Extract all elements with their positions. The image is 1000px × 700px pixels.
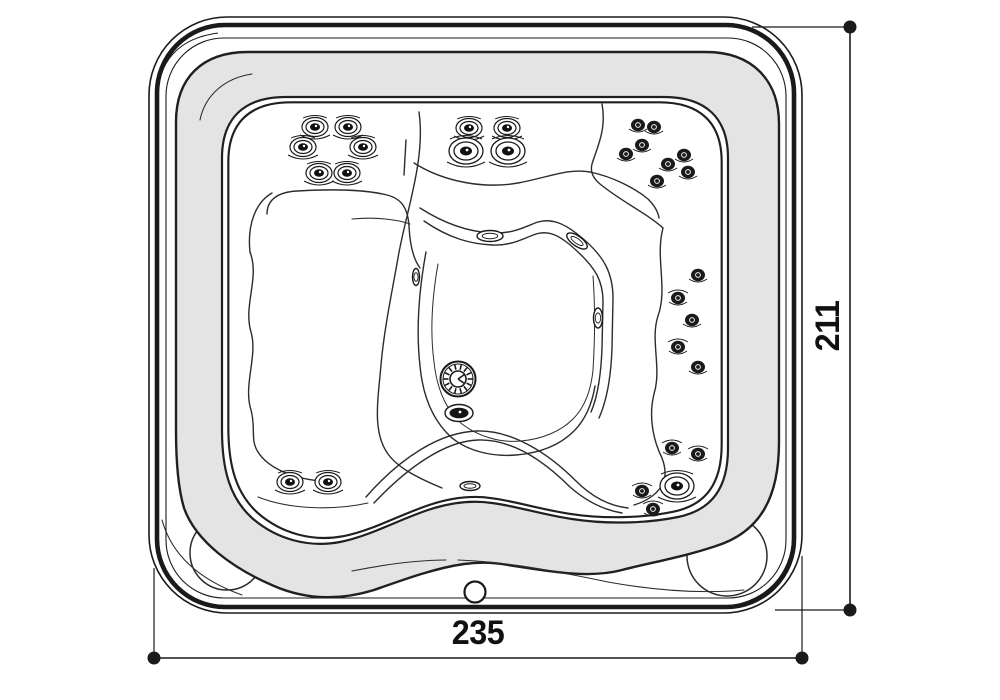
jet-medium-core	[310, 123, 320, 131]
jet-large-core	[460, 147, 472, 156]
jet-medium-core	[464, 124, 474, 132]
height-dimension-dot	[844, 604, 857, 617]
jet-small	[691, 269, 705, 281]
jet-large-core	[502, 147, 514, 156]
drain-tick	[460, 388, 461, 393]
jet-small	[691, 448, 705, 460]
jet-highlight	[348, 125, 350, 127]
jet-highlight	[347, 171, 349, 173]
jet-medium-core	[502, 124, 512, 132]
height-dimension-label: 211	[811, 301, 845, 352]
jet-highlight	[677, 484, 680, 487]
jet-highlight	[315, 125, 317, 127]
jet-medium-core	[358, 143, 368, 151]
jet-highlight	[328, 480, 330, 482]
jet-small	[665, 442, 679, 454]
basin-edge-echo	[228, 102, 721, 538]
jet-highlight	[508, 149, 511, 152]
jet-small	[681, 166, 695, 178]
jet-highlight	[319, 171, 321, 173]
jet-small	[671, 341, 685, 353]
width-dimension-dot	[148, 652, 161, 665]
jet-medium-core	[285, 478, 295, 486]
jet-highlight	[466, 149, 469, 152]
jet-highlight	[363, 145, 365, 147]
jet-highlight	[469, 126, 471, 128]
technical-drawing-canvas: 235 211	[0, 0, 1000, 700]
water-fitting-outer	[477, 231, 503, 242]
jet-small	[631, 119, 645, 131]
jet-medium-core	[323, 478, 333, 486]
jet-small	[635, 139, 649, 151]
water-fitting-outer	[460, 482, 480, 491]
jet-highlight	[303, 145, 305, 147]
jet-highlight	[290, 480, 292, 482]
drain-tick	[455, 388, 456, 393]
suction-fitting-core	[449, 408, 468, 419]
drain-tick	[455, 365, 456, 370]
jet-medium-core	[298, 143, 308, 151]
jet-medium-core	[343, 123, 353, 131]
jet-large-core	[671, 482, 683, 491]
drain-tick	[460, 365, 461, 370]
width-dimension-dot	[796, 652, 809, 665]
jet-small	[635, 485, 649, 497]
width-dimension-label: 235	[452, 616, 504, 650]
height-dimension-dot	[844, 21, 857, 34]
jet-small	[691, 361, 705, 373]
hot-tub-top-view-svg	[0, 0, 1000, 700]
jet-small	[647, 121, 661, 133]
jet-medium-core	[342, 169, 352, 177]
jet-small	[650, 175, 664, 187]
jet-small	[677, 149, 691, 161]
jet-small	[661, 158, 675, 170]
jet-small	[646, 503, 660, 515]
jet-highlight	[507, 126, 509, 128]
jet-medium-core	[314, 169, 324, 177]
jet-small	[619, 148, 633, 160]
jet-small	[685, 314, 699, 326]
jet-highlight	[459, 411, 462, 414]
jet-small	[671, 292, 685, 304]
apron-fitting-circle	[465, 582, 486, 603]
